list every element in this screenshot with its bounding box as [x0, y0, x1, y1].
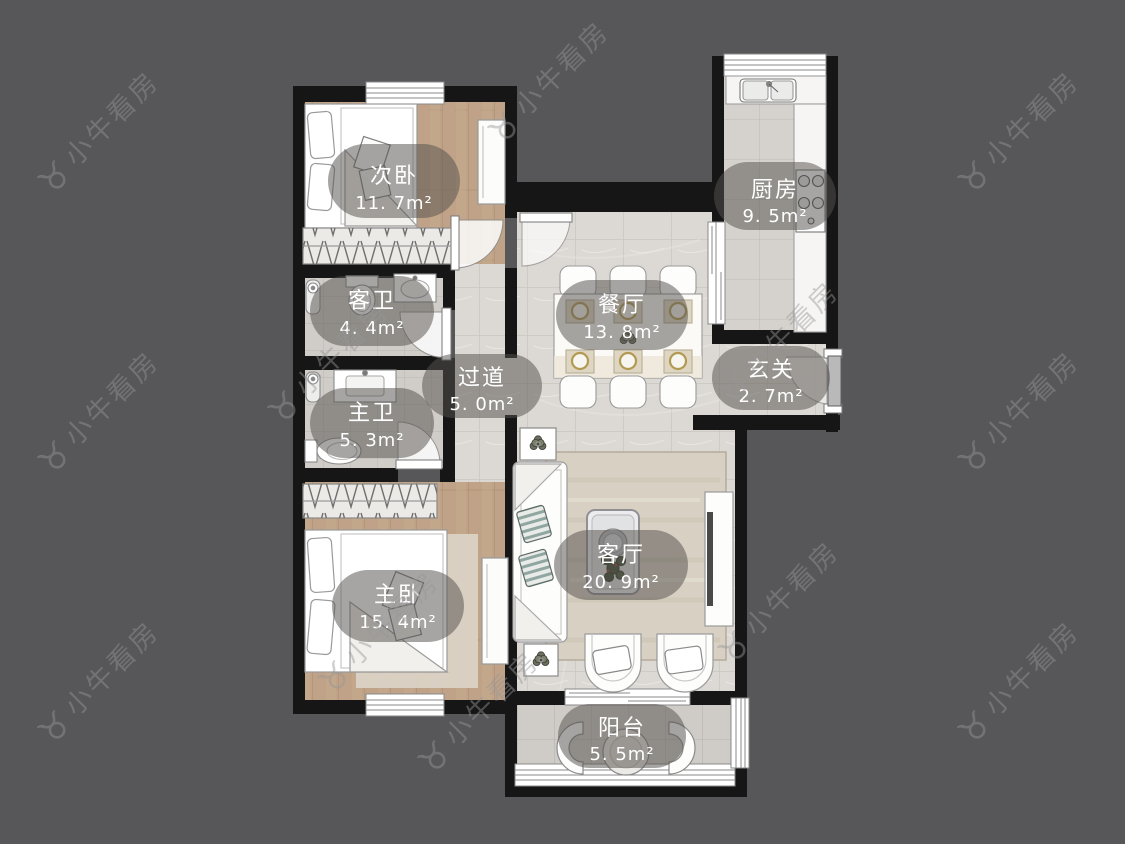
- dresser: [482, 558, 508, 664]
- room-area: 20. 9m²: [582, 572, 660, 593]
- room-label-kitchen: 厨房 9. 5m²: [714, 162, 836, 230]
- armchair: [585, 634, 641, 692]
- tv: [707, 512, 713, 606]
- room-area: 2. 7m²: [738, 386, 803, 407]
- room-area: 15. 4m²: [359, 612, 437, 633]
- master-bedroom-window: [366, 694, 444, 716]
- room-area: 9. 5m²: [742, 206, 807, 227]
- room-area: 5. 5m²: [589, 744, 654, 765]
- wardrobe: [303, 484, 437, 518]
- room-area: 11. 7m²: [355, 193, 433, 214]
- balcony-side-window: [731, 698, 749, 768]
- plant-pot: [520, 428, 556, 460]
- room-name: 玄关: [747, 358, 795, 383]
- room-name: 主卧: [374, 583, 422, 608]
- room-name: 客卫: [348, 289, 396, 314]
- wardrobe: [303, 228, 451, 264]
- floorplan-screenshot: 次卧 11. 7m² 厨房 9. 5m² 客卫 4. 4m² 餐厅 13. 8m…: [0, 0, 1125, 844]
- room-name: 厨房: [751, 178, 799, 203]
- room-label-balcony: 阳台 5. 5m²: [558, 704, 686, 768]
- room-name: 客厅: [597, 543, 645, 568]
- room-name: 主卫: [348, 401, 396, 426]
- plant-pot: [524, 644, 558, 676]
- secondary-bedroom-window: [366, 82, 444, 104]
- room-area: 13. 8m²: [583, 322, 661, 343]
- room-label-secondary-bedroom: 次卧 11. 7m²: [328, 144, 460, 218]
- room-label-living-room: 客厅 20. 9m²: [554, 530, 688, 600]
- room-label-hallway: 过道 5. 0m²: [422, 354, 542, 418]
- floorplan-canvas: 次卧 11. 7m² 厨房 9. 5m² 客卫 4. 4m² 餐厅 13. 8m…: [0, 0, 1125, 844]
- room-area: 4. 4m²: [339, 318, 404, 339]
- room-name: 阳台: [598, 716, 646, 741]
- balcony-sliding-door: [565, 689, 690, 705]
- tv-console: [705, 492, 733, 626]
- room-area: 5. 0m²: [449, 394, 514, 415]
- dining-chairs-bottom: [560, 376, 696, 408]
- room-label-entry: 玄关 2. 7m²: [712, 346, 830, 410]
- shower-icon: [306, 372, 320, 402]
- room-label-master-bedroom: 主卧 15. 4m²: [332, 570, 464, 642]
- room-area: 5. 3m²: [339, 430, 404, 451]
- room-name: 过道: [458, 366, 506, 391]
- kitchen-sink: [740, 79, 796, 102]
- kitchen-sliding-door: [708, 222, 725, 324]
- room-name: 次卧: [370, 164, 418, 189]
- room-label-dining-room: 餐厅 13. 8m²: [556, 280, 688, 350]
- room-label-guest-bathroom: 客卫 4. 4m²: [310, 276, 434, 346]
- room-name: 餐厅: [598, 293, 646, 318]
- room-label-master-bathroom: 主卫 5. 3m²: [310, 388, 434, 458]
- armchair: [657, 634, 713, 692]
- dresser: [478, 120, 505, 204]
- kitchen-window: [724, 54, 826, 76]
